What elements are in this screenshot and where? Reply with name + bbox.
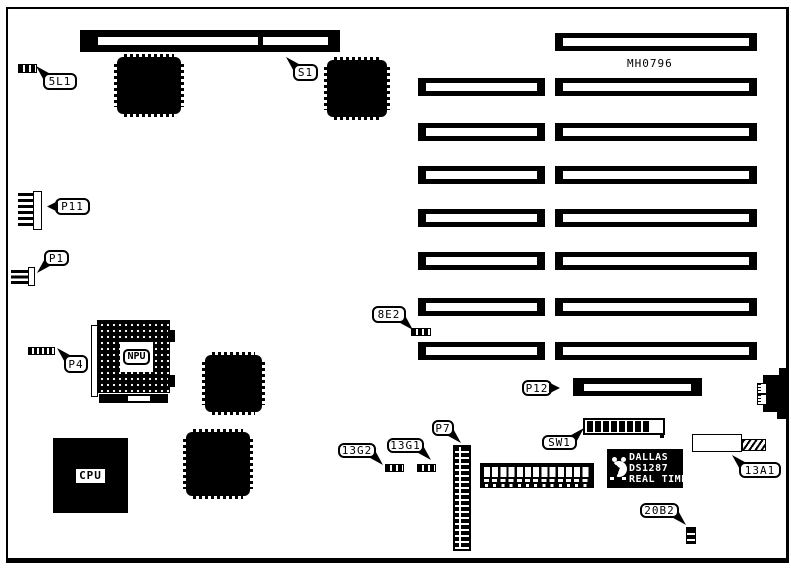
memory-slot-window bbox=[263, 37, 328, 45]
callout-p11-label: P11 bbox=[61, 200, 84, 213]
isa-slot-extension bbox=[418, 209, 545, 227]
isa-slot bbox=[555, 33, 757, 51]
pin-header-sockets bbox=[484, 467, 590, 477]
dip-switch-positions bbox=[587, 421, 649, 432]
din-connector-step bbox=[777, 411, 788, 419]
isa-slot bbox=[555, 252, 757, 270]
pin-header-gaps bbox=[484, 479, 590, 482]
callout-8e2: 8E2 bbox=[372, 306, 406, 323]
npu-socket-center: NPU bbox=[120, 342, 153, 372]
qfp-chip bbox=[327, 60, 387, 117]
dip-switch-pin bbox=[660, 434, 664, 438]
qfp-chip bbox=[186, 432, 250, 496]
callout-s1-label: S1 bbox=[298, 66, 313, 79]
20b2-jumper bbox=[686, 527, 696, 544]
npu-socket-bottom-bar bbox=[99, 394, 168, 403]
memory-slot-window bbox=[98, 37, 258, 45]
callout-13a1-label: 13A1 bbox=[745, 464, 776, 477]
alarm-clock-icon bbox=[610, 456, 629, 482]
callout-13g1-label: 13G1 bbox=[390, 439, 421, 452]
din-pin-block bbox=[757, 383, 767, 394]
pin-header-pins bbox=[485, 484, 590, 487]
din-connector-step bbox=[779, 368, 788, 376]
callout-20b2: 20B2 bbox=[640, 503, 679, 518]
isa-slot-extension bbox=[418, 123, 545, 141]
callout-p12: P12 bbox=[522, 380, 552, 396]
isa-slot-extension bbox=[418, 298, 545, 316]
isa-slot-extension bbox=[418, 252, 545, 270]
13a1-component bbox=[742, 439, 766, 451]
callout-p11: P11 bbox=[55, 198, 90, 215]
8e2-connector bbox=[411, 328, 431, 336]
5l1-connector bbox=[18, 64, 37, 73]
board-part-number: MH0796 bbox=[627, 57, 673, 70]
bottom-bar-window bbox=[128, 396, 150, 401]
rtc-type: REAL TIME bbox=[629, 474, 688, 485]
npu-socket-tab bbox=[168, 375, 175, 387]
isa-slot bbox=[555, 78, 757, 96]
callout-p4: P4 bbox=[64, 355, 88, 373]
isa-slot bbox=[555, 209, 757, 227]
isa-slot bbox=[555, 342, 757, 360]
callout-p1: P1 bbox=[44, 250, 69, 266]
isa-slot-extension bbox=[418, 78, 545, 96]
callout-20b2-label: 20B2 bbox=[644, 504, 675, 517]
p7-pin-header bbox=[453, 445, 471, 551]
callout-p4-label: P4 bbox=[68, 358, 83, 371]
memory-slot-bar bbox=[80, 30, 340, 52]
callout-13g2: 13G2 bbox=[338, 443, 376, 458]
clock-face bbox=[611, 461, 627, 477]
isa-slot-extension bbox=[418, 342, 545, 360]
rtc-chip-text: DALLAS DS1287 REAL TIME bbox=[629, 452, 688, 485]
cpu-label: CPU bbox=[75, 468, 106, 484]
callout-5l1-label: 5L1 bbox=[49, 75, 72, 88]
callout-sw1-label: SW1 bbox=[548, 436, 571, 449]
qfp-chip bbox=[205, 355, 262, 412]
13g2-connector bbox=[385, 464, 404, 472]
isa-slot bbox=[555, 166, 757, 184]
callout-sw1: SW1 bbox=[542, 435, 577, 450]
callout-13a1: 13A1 bbox=[739, 462, 781, 478]
p1-connector-header bbox=[28, 267, 35, 286]
isa-slot-extension bbox=[418, 166, 545, 184]
sw1-dip-switch bbox=[583, 418, 665, 435]
isa-slot bbox=[555, 298, 757, 316]
rtc-brand: DALLAS bbox=[629, 452, 688, 463]
rtc-model: DS1287 bbox=[629, 463, 688, 474]
motherboard-layout-diagram: MH0796 CPU NPU bbox=[0, 0, 791, 569]
berg-pin-header bbox=[480, 463, 594, 488]
qfp-chip bbox=[117, 57, 181, 114]
callout-p12-label: P12 bbox=[526, 382, 549, 395]
callout-p7-label: P7 bbox=[435, 422, 450, 435]
isa-slot bbox=[555, 123, 757, 141]
callout-8e2-label: 8E2 bbox=[378, 308, 401, 321]
rtc-chip: DALLAS DS1287 REAL TIME bbox=[607, 449, 683, 488]
13a1-socket bbox=[692, 434, 742, 452]
callout-5l1: 5L1 bbox=[43, 73, 77, 90]
p11-connector-pins bbox=[18, 193, 33, 228]
callout-s1: S1 bbox=[293, 64, 318, 81]
callout-13g1: 13G1 bbox=[387, 438, 424, 453]
callout-p1-label: P1 bbox=[49, 252, 64, 265]
p4-connector bbox=[28, 347, 55, 355]
13g1-connector bbox=[417, 464, 436, 472]
cpu-chip: CPU bbox=[53, 438, 128, 513]
p12-slot bbox=[573, 378, 702, 396]
callout-13g2-label: 13G2 bbox=[342, 444, 373, 457]
p11-connector-header bbox=[33, 191, 42, 230]
npu-socket-tab bbox=[168, 330, 175, 342]
p1-connector-pins bbox=[11, 270, 28, 284]
npu-label: NPU bbox=[123, 349, 149, 365]
callout-p7: P7 bbox=[432, 420, 454, 436]
din-pin-block bbox=[757, 394, 767, 405]
